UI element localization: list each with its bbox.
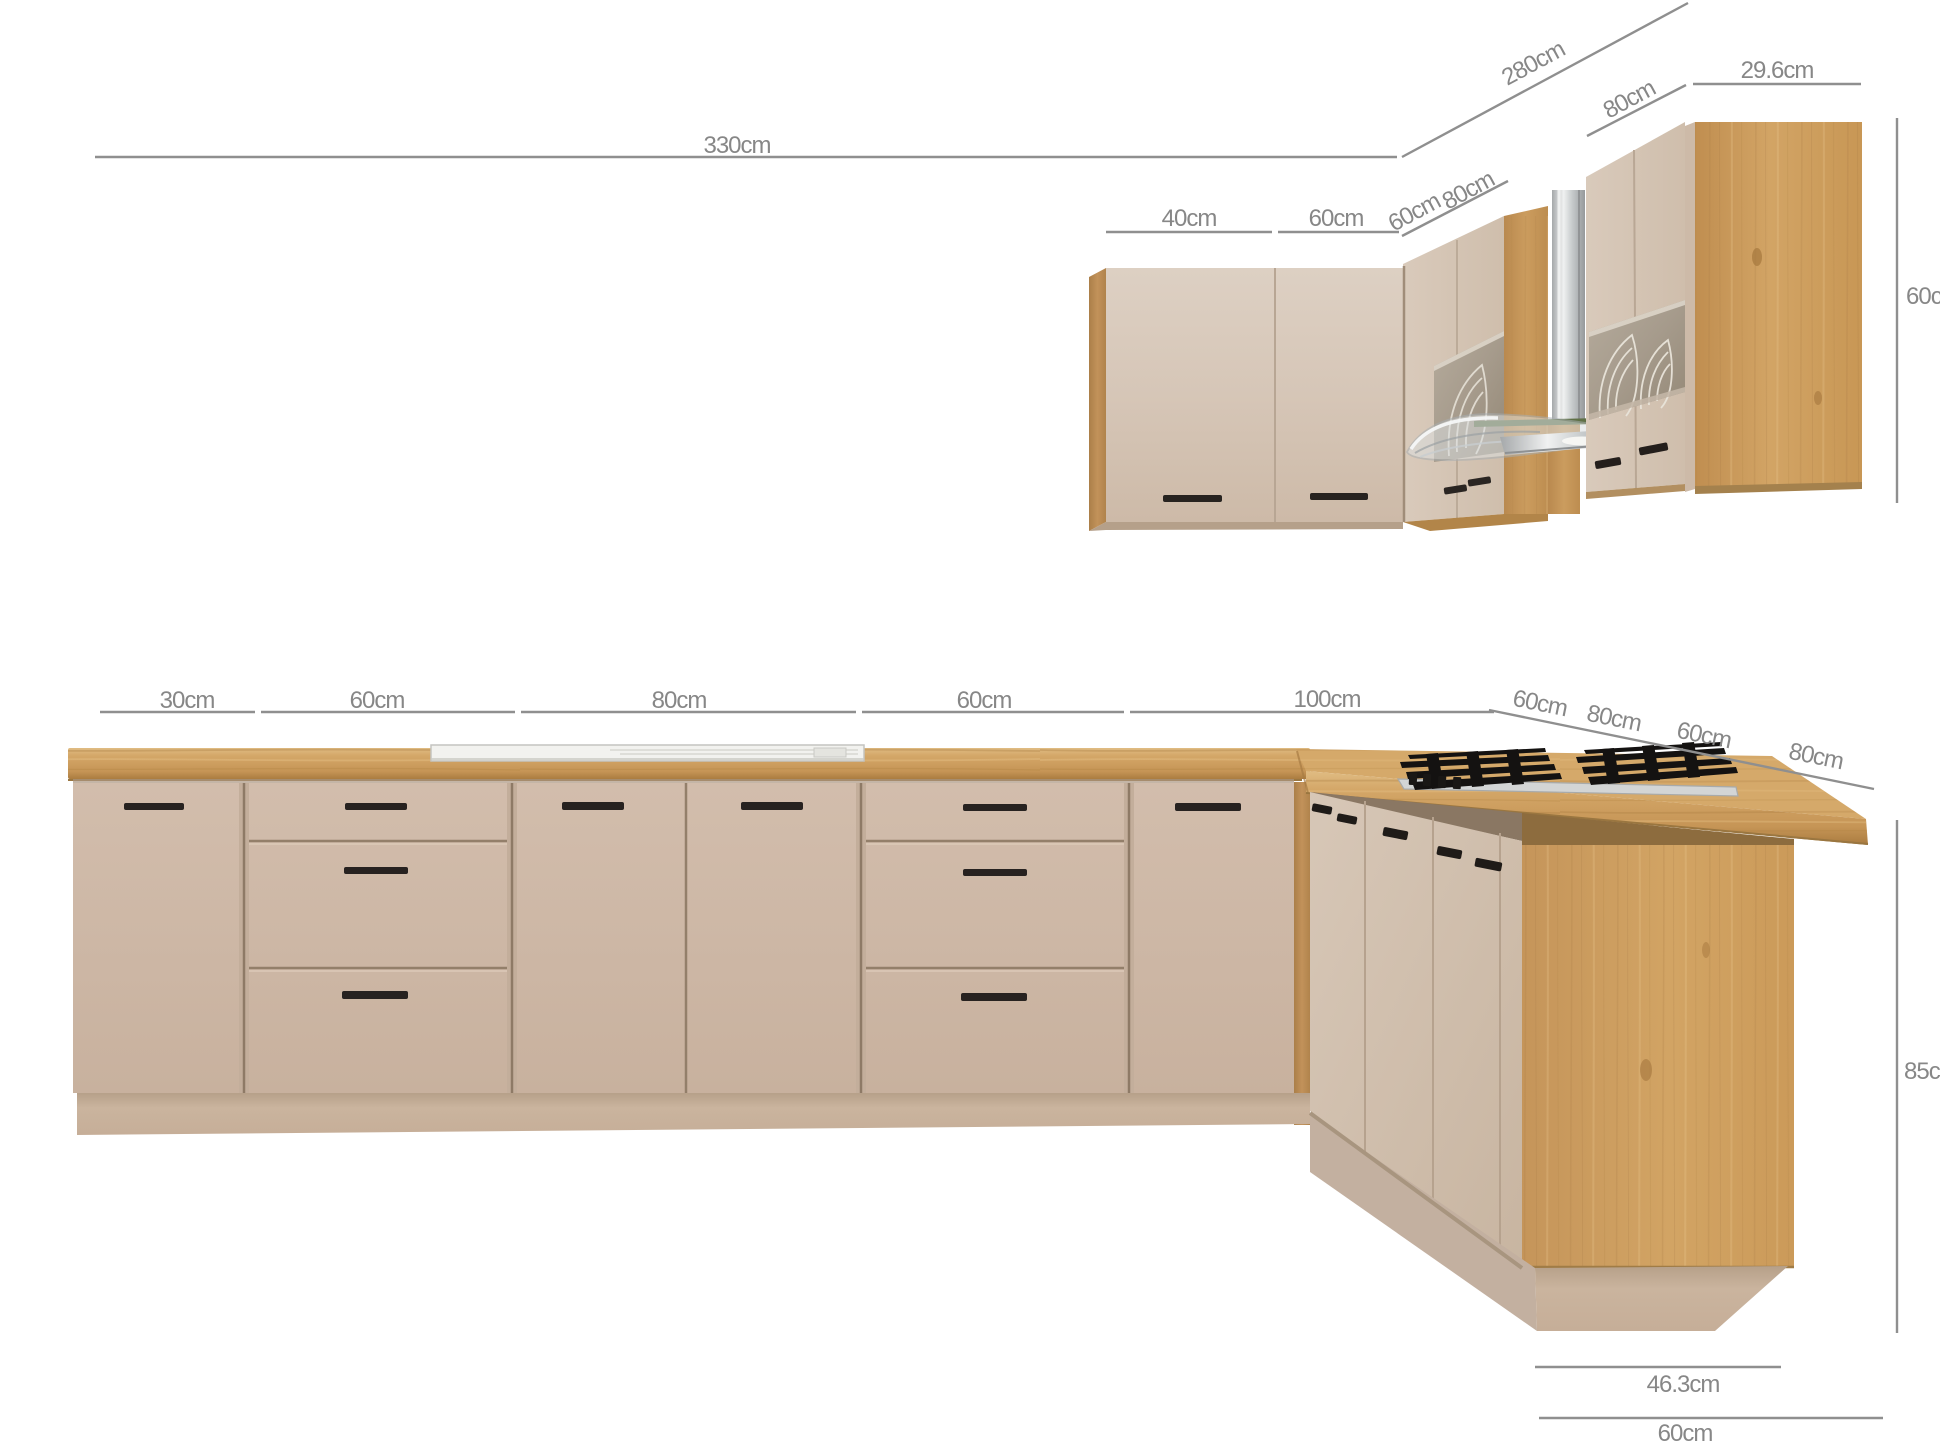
svg-text:60cm: 60cm [350, 687, 405, 714]
svg-text:100cm: 100cm [1293, 686, 1360, 713]
svg-text:30cm: 30cm [160, 687, 215, 714]
svg-text:60cm: 60cm [1658, 1420, 1713, 1447]
svg-text:330cm: 330cm [703, 132, 770, 159]
svg-text:29.6cm: 29.6cm [1741, 57, 1814, 84]
svg-text:60cm: 60cm [957, 687, 1012, 714]
svg-text:60cm: 60cm [1906, 283, 1940, 310]
svg-text:85cm: 85cm [1904, 1058, 1940, 1085]
svg-text:40cm: 40cm [1162, 205, 1217, 232]
svg-text:60cm: 60cm [1309, 205, 1364, 232]
svg-text:80cm: 80cm [652, 687, 707, 714]
svg-text:46.3cm: 46.3cm [1647, 1371, 1720, 1398]
